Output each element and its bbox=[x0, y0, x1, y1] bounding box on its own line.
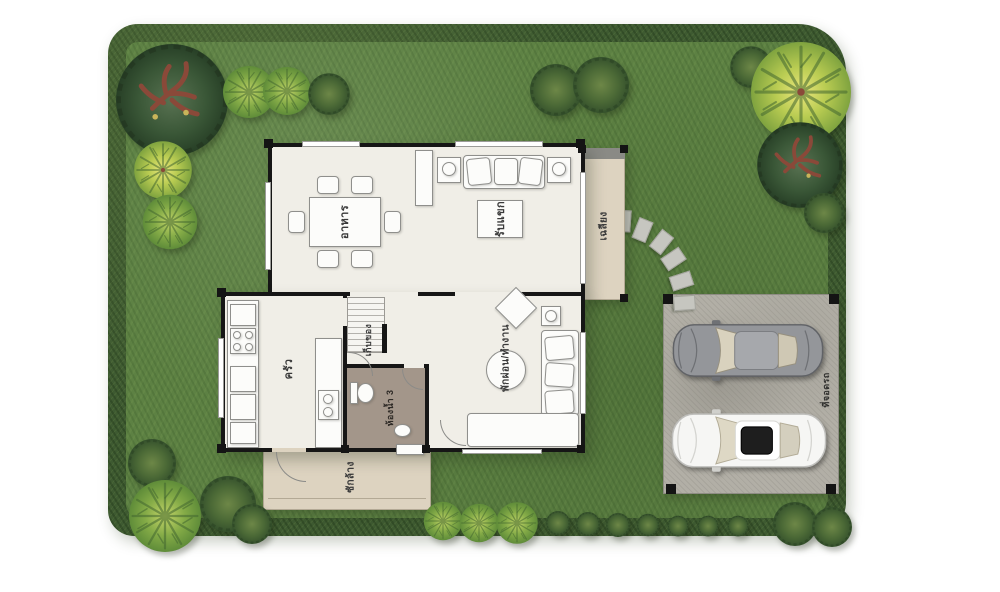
terrace-door-window bbox=[580, 172, 586, 284]
terrace-step-line bbox=[268, 498, 426, 499]
stove-burner bbox=[233, 331, 241, 339]
dining-chair bbox=[317, 176, 339, 194]
sink-basin bbox=[323, 394, 333, 404]
counter-cabinet bbox=[230, 422, 256, 444]
window bbox=[302, 141, 360, 147]
sofa-cushion bbox=[494, 158, 518, 185]
stove-burner bbox=[245, 343, 253, 351]
silver-car bbox=[672, 319, 824, 381]
bathroom-wall bbox=[425, 364, 429, 452]
carport-post bbox=[663, 294, 673, 304]
storage-label: เก็บของ bbox=[361, 324, 375, 357]
bathroom-door-opening bbox=[404, 364, 424, 368]
site-plan: อาหาร รับแขก เฉลียง ครัว เก็บของ ห้องน้ำ… bbox=[0, 0, 1000, 592]
window bbox=[265, 182, 271, 270]
terrace-roof-edge bbox=[583, 148, 625, 159]
laundry-label: ซักล้าง bbox=[344, 461, 359, 492]
dining-chair bbox=[288, 211, 305, 233]
living-label: รับแขก bbox=[491, 201, 509, 237]
stove-burner bbox=[233, 343, 241, 351]
stair-wall bbox=[382, 324, 387, 353]
window bbox=[462, 449, 542, 454]
carport-post bbox=[666, 484, 676, 494]
sofa-cushion bbox=[517, 157, 543, 187]
carport-label: ที่จอดรถ bbox=[819, 372, 833, 407]
toilet-bowl bbox=[357, 383, 374, 403]
sofa-cushion bbox=[544, 362, 575, 388]
carport-post bbox=[829, 294, 839, 304]
sofa-cushion bbox=[466, 157, 493, 186]
dining-chair bbox=[317, 250, 339, 268]
sofa-cushion bbox=[544, 389, 575, 415]
bathroom-label: ห้องน้ำ 3 bbox=[383, 390, 397, 427]
corner-post bbox=[422, 445, 430, 453]
family-label: พักผ่อน/ทำงาน bbox=[499, 324, 514, 392]
corner-post bbox=[217, 444, 226, 453]
dining-chair bbox=[384, 211, 401, 233]
table-plant bbox=[442, 162, 456, 176]
door-step bbox=[396, 444, 424, 455]
counter-cabinet bbox=[230, 394, 256, 420]
window bbox=[218, 338, 224, 418]
carport-post bbox=[826, 484, 836, 494]
corner-post bbox=[217, 288, 226, 297]
counter-cabinet bbox=[230, 366, 256, 392]
window bbox=[455, 141, 543, 147]
stepping-stone bbox=[673, 295, 696, 311]
dining-chair bbox=[351, 176, 373, 194]
corner-post bbox=[577, 445, 585, 453]
laundry-door-opening bbox=[272, 448, 306, 452]
corner-post bbox=[264, 139, 273, 148]
dining-label: อาหาร bbox=[335, 205, 353, 239]
l-sofa-chaise bbox=[467, 413, 579, 447]
table-lamp bbox=[552, 162, 566, 176]
tall-cabinet bbox=[415, 150, 433, 206]
fridge bbox=[230, 304, 256, 326]
terrace-post bbox=[620, 145, 628, 153]
stove-burner bbox=[245, 331, 253, 339]
sofa-cushion bbox=[544, 335, 575, 361]
corner-post bbox=[576, 139, 585, 148]
terrace-label: เฉลียง bbox=[597, 211, 612, 240]
corner-post bbox=[341, 445, 349, 453]
white-car bbox=[671, 408, 827, 472]
kitchen-label: ครัว bbox=[279, 359, 297, 380]
table-plant bbox=[545, 310, 557, 322]
window bbox=[580, 332, 586, 414]
sink-basin bbox=[323, 407, 333, 417]
dining-chair bbox=[351, 250, 373, 268]
terrace-post bbox=[620, 294, 628, 302]
